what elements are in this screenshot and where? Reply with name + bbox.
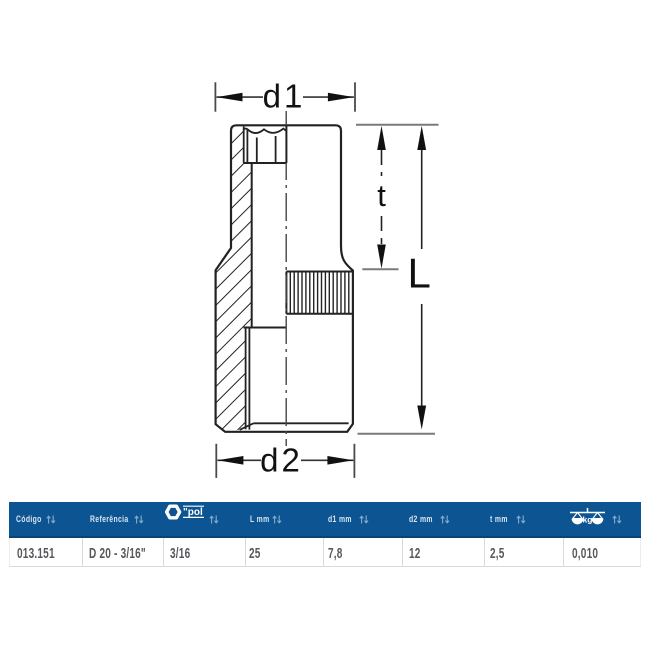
svg-text:L: L [408, 249, 431, 296]
svg-text:t: t [377, 178, 386, 213]
svg-text:d1: d1 [263, 78, 306, 115]
svg-text:d2: d2 [260, 442, 303, 479]
svg-text:kg: kg [582, 515, 592, 525]
svg-text:"pol: "pol [183, 507, 203, 518]
